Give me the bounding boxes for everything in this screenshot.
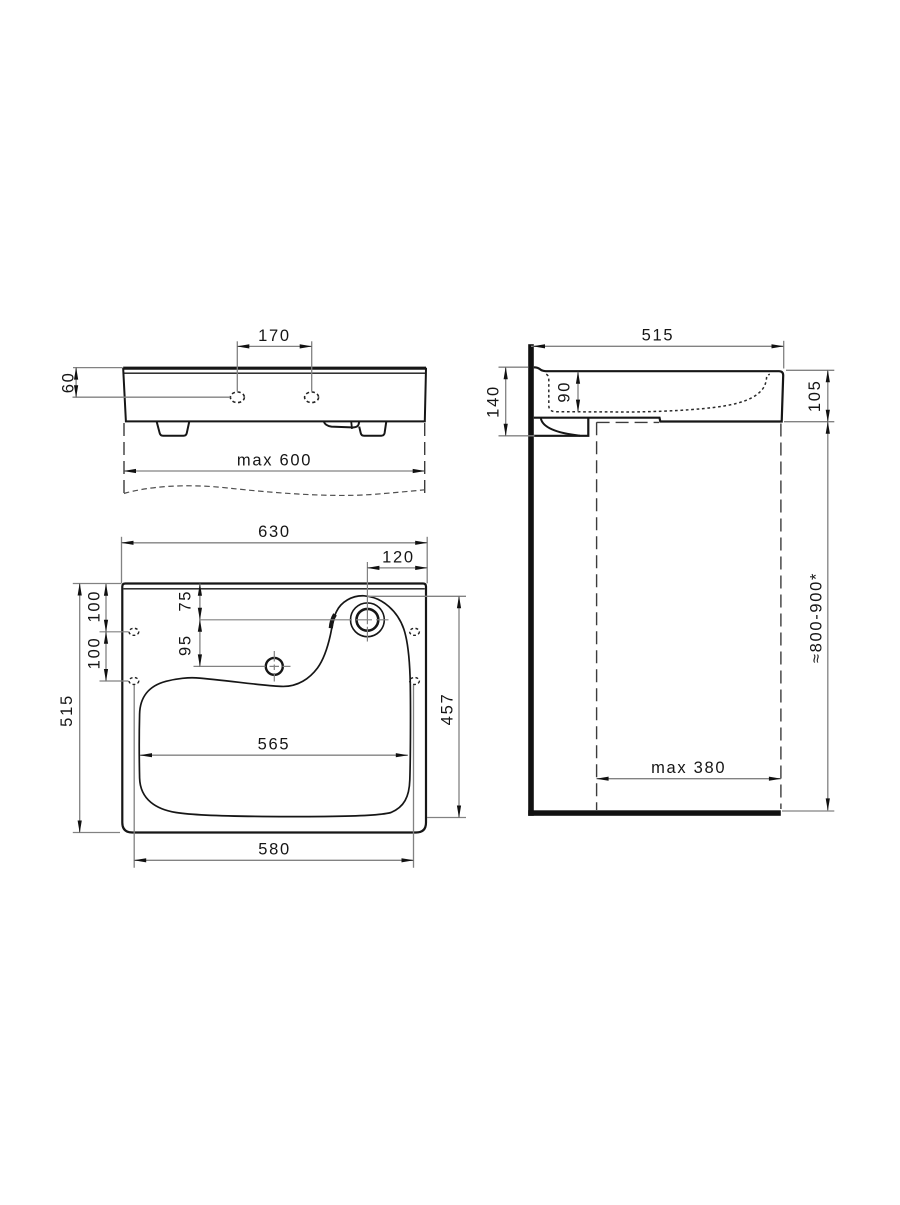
svg-text:457: 457	[439, 693, 457, 726]
svg-text:≈800-900*: ≈800-900*	[807, 572, 825, 663]
svg-text:75: 75	[176, 590, 194, 612]
svg-text:515: 515	[642, 327, 675, 345]
svg-text:515: 515	[58, 694, 76, 727]
svg-text:95: 95	[176, 634, 194, 656]
svg-text:565: 565	[258, 736, 291, 754]
svg-text:max 380: max 380	[651, 759, 726, 777]
svg-text:max 600: max 600	[237, 451, 312, 469]
svg-text:100: 100	[86, 590, 104, 623]
svg-text:60: 60	[60, 372, 78, 394]
svg-text:170: 170	[258, 327, 291, 345]
svg-text:90: 90	[556, 381, 574, 403]
svg-text:580: 580	[258, 841, 291, 859]
svg-text:105: 105	[806, 379, 824, 412]
svg-text:140: 140	[485, 385, 503, 418]
svg-text:630: 630	[258, 523, 291, 541]
svg-text:120: 120	[382, 548, 415, 566]
svg-text:100: 100	[86, 637, 104, 670]
